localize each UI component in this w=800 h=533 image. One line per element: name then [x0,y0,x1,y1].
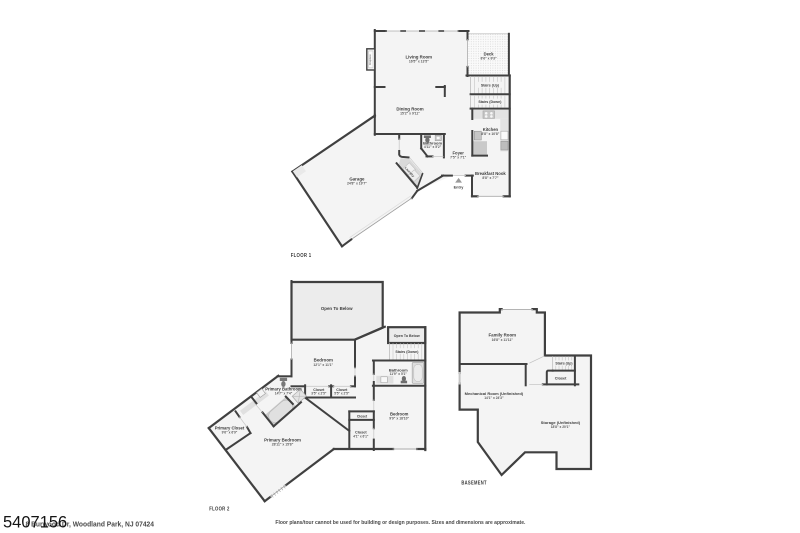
svg-text:Living Room: Living Room [406,54,433,59]
svg-text:Fireplace: Fireplace [368,54,372,65]
svg-text:9'6" x 6'9": 9'6" x 6'9" [222,431,238,435]
svg-text:18'8" x 20'1": 18'8" x 20'1" [551,425,571,429]
svg-text:Dining Room: Dining Room [396,106,423,111]
svg-text:9'9" x 18'10": 9'9" x 18'10" [389,417,409,421]
svg-text:Primary Bedroom: Primary Bedroom [264,437,301,442]
svg-text:Garage: Garage [349,176,365,181]
svg-text:BASEMENT: BASEMENT [461,481,487,487]
svg-text:28'11" x 15'8": 28'11" x 15'8" [272,443,294,447]
svg-text:8'6" x 9'3": 8'6" x 9'3" [481,57,498,61]
svg-text:FLOOR 1: FLOOR 1 [291,253,312,259]
svg-text:Closet: Closet [555,376,567,380]
svg-text:Open To Below: Open To Below [321,306,353,311]
svg-text:Stairs (Up): Stairs (Up) [481,83,500,87]
svg-text:12'1" x 11'1": 12'1" x 11'1" [313,363,333,367]
svg-text:5407156: 5407156 [3,514,67,532]
svg-text:Stairs (Down): Stairs (Down) [395,350,419,354]
svg-text:FLOOR 2: FLOOR 2 [209,506,230,512]
svg-text:Stairs (Up): Stairs (Up) [555,362,572,366]
svg-text:8'8" x 10'8": 8'8" x 10'8" [481,132,499,136]
svg-text:16'5" x 13'5": 16'5" x 13'5" [409,60,429,64]
svg-text:Floor plans/tour cannot be use: Floor plans/tour cannot be used for buil… [275,520,526,526]
svg-text:Open To Below: Open To Below [394,334,420,338]
svg-text:11'9" x 5'1": 11'9" x 5'1" [390,372,408,376]
svg-text:24'8" x 19'7": 24'8" x 19'7" [347,182,367,186]
svg-text:7'5" x 7'1": 7'5" x 7'1" [450,155,467,159]
svg-text:8'8" x 7'7": 8'8" x 7'7" [482,176,499,180]
svg-text:Bedroom: Bedroom [390,411,409,416]
svg-text:4'11" x 5'2": 4'11" x 5'2" [424,145,442,149]
svg-text:14'1" x 24'3": 14'1" x 24'3" [484,396,504,400]
svg-text:4'1" x 6'1": 4'1" x 6'1" [353,434,369,438]
svg-text:14'7" x 7'4": 14'7" x 7'4" [275,391,293,395]
svg-text:16'8" x 11'11": 16'8" x 11'11" [492,338,514,342]
svg-text:Stairs (Down): Stairs (Down) [478,100,502,104]
svg-text:15'2" x 9'11": 15'2" x 9'11" [400,112,420,116]
svg-text:3'5" x 2'5": 3'5" x 2'5" [311,392,327,396]
svg-text:Closet: Closet [357,414,368,418]
svg-text:5'5" x 2'5": 5'5" x 2'5" [334,392,350,396]
svg-text:Entry: Entry [454,186,465,190]
